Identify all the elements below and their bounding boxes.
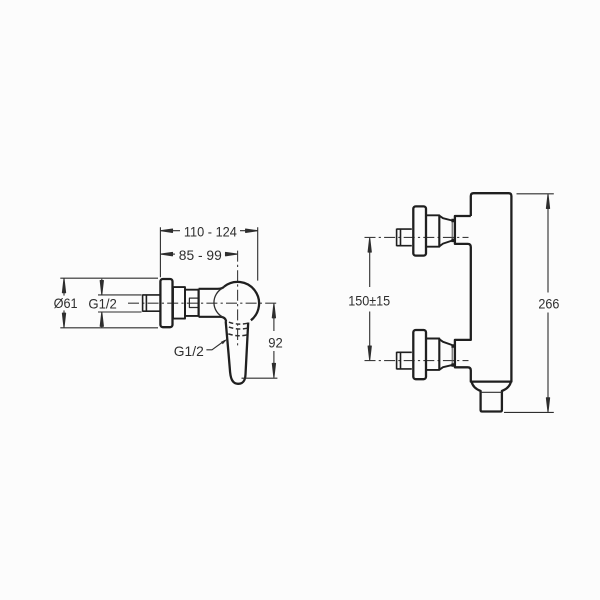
svg-text:85 - 99: 85 - 99	[179, 248, 222, 263]
svg-text:Ø61: Ø61	[54, 296, 78, 311]
svg-text:150±15: 150±15	[348, 293, 390, 308]
svg-text:92: 92	[268, 336, 283, 351]
svg-text:266: 266	[538, 297, 559, 312]
svg-text:110 - 124: 110 - 124	[184, 224, 237, 239]
svg-text:G1/2: G1/2	[88, 296, 117, 311]
svg-text:G1/2: G1/2	[174, 344, 204, 359]
